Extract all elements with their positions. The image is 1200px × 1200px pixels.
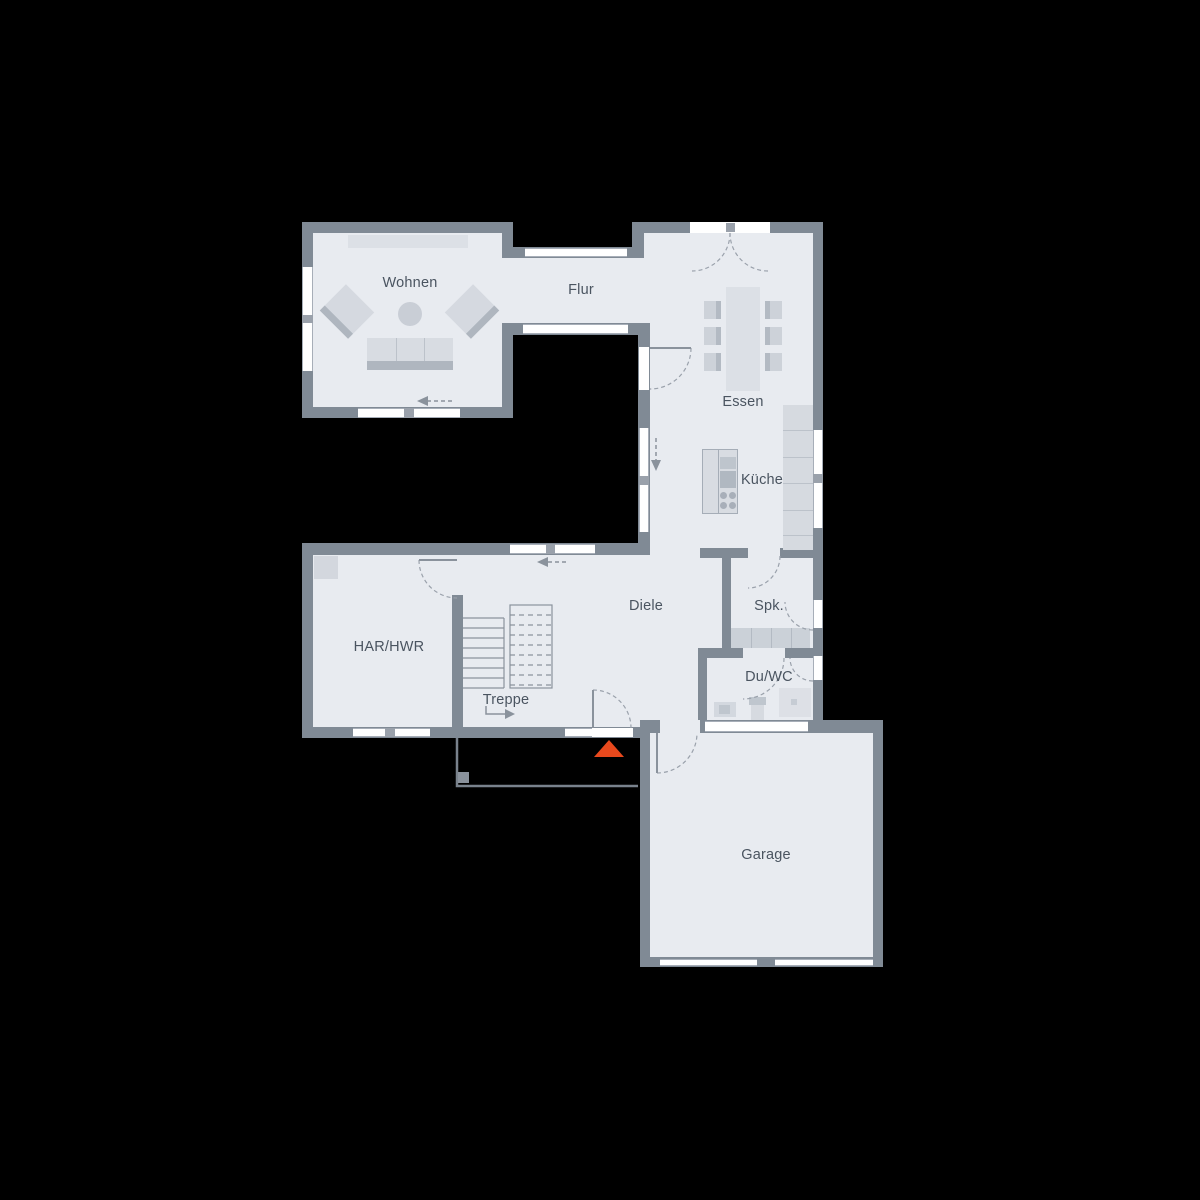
wall-segment — [700, 548, 748, 558]
wall-segment — [698, 648, 743, 658]
room-label-essen: Essen — [722, 394, 763, 410]
basin — [719, 705, 730, 714]
dining-table — [726, 287, 760, 391]
dining-chair — [765, 353, 782, 371]
wall-segment — [302, 222, 513, 233]
dining-chair — [704, 301, 721, 319]
facade-notch — [513, 222, 632, 247]
room-label-wohnen: Wohnen — [383, 275, 438, 291]
room-label-spk: Spk. — [754, 598, 784, 614]
wall-segment — [640, 733, 650, 957]
wall-segment — [873, 723, 883, 967]
floor-plan: Wohnen Flur Essen Küche Diele Spk. HAR/H… — [0, 0, 1200, 1200]
counter-divider — [783, 483, 813, 484]
wall-segment — [302, 543, 313, 738]
wall-segment — [770, 222, 813, 233]
burner — [729, 502, 736, 509]
entrance-marker-icon — [594, 740, 624, 757]
door-handle — [726, 223, 735, 232]
wall-segment — [785, 648, 813, 658]
wall-segment — [502, 323, 513, 418]
window-duwc — [813, 656, 823, 680]
toilet — [749, 697, 766, 705]
sofa-back — [367, 361, 453, 370]
toilet-bowl — [751, 705, 764, 720]
counter-divider — [783, 430, 813, 431]
island-divider — [718, 450, 719, 513]
burner — [720, 492, 727, 499]
shower-drain — [791, 699, 797, 705]
room-label-flur: Flur — [568, 282, 594, 298]
window-mullion — [404, 408, 414, 418]
window-mullion — [385, 728, 395, 737]
door-entrance — [592, 728, 633, 737]
floor-garage — [640, 723, 883, 967]
shelf-divider — [751, 628, 752, 648]
wall-segment — [632, 222, 690, 233]
microwave — [720, 457, 736, 469]
shelf-divider — [771, 628, 772, 648]
room-label-kueche: Küche — [741, 472, 783, 488]
coffee-table — [398, 302, 422, 326]
sofa-divider — [424, 338, 425, 361]
window-flur-bottom — [523, 324, 628, 334]
sofa-divider — [396, 338, 397, 361]
wall-segment — [813, 552, 823, 728]
garage-door-post — [757, 957, 775, 967]
kitchen-island — [703, 450, 737, 513]
courtyard-void — [513, 335, 638, 543]
wall-segment — [452, 595, 463, 727]
room-label-du-wc: Du/WC — [745, 669, 793, 685]
wall-segment — [302, 543, 650, 555]
counter-divider — [783, 535, 813, 536]
door-essen-terrace — [639, 347, 649, 390]
window-spk — [813, 600, 823, 628]
oven — [720, 471, 736, 488]
room-label-diele: Diele — [629, 598, 663, 614]
window-mullion — [546, 544, 555, 554]
room-label-treppe: Treppe — [483, 692, 530, 708]
window-mullion — [639, 476, 649, 485]
room-label-garage: Garage — [741, 847, 791, 863]
burner — [729, 492, 736, 499]
sofa — [367, 338, 453, 361]
sideboard — [348, 235, 468, 248]
dining-chair — [765, 301, 782, 319]
washbasin — [714, 702, 736, 717]
room-label-har-hwr: HAR/HWR — [354, 639, 425, 655]
pantry-shelf — [731, 628, 810, 648]
burner — [720, 502, 727, 509]
wall-segment — [698, 658, 707, 720]
kitchen-counter — [783, 405, 813, 550]
window-garage-top — [705, 721, 808, 732]
window-entry-sidelight — [565, 728, 592, 737]
shower — [779, 688, 811, 717]
dining-chair — [765, 327, 782, 345]
window-facade-recess — [525, 248, 627, 257]
counter-divider — [783, 457, 813, 458]
dining-chair — [704, 327, 721, 345]
counter-divider — [783, 510, 813, 511]
dining-chair — [704, 353, 721, 371]
canopy-outline — [457, 738, 638, 786]
wall-segment — [722, 558, 731, 650]
window-mullion — [302, 315, 313, 323]
utility-unit — [314, 556, 338, 579]
shelf-divider — [791, 628, 792, 648]
window-mullion — [813, 474, 823, 483]
